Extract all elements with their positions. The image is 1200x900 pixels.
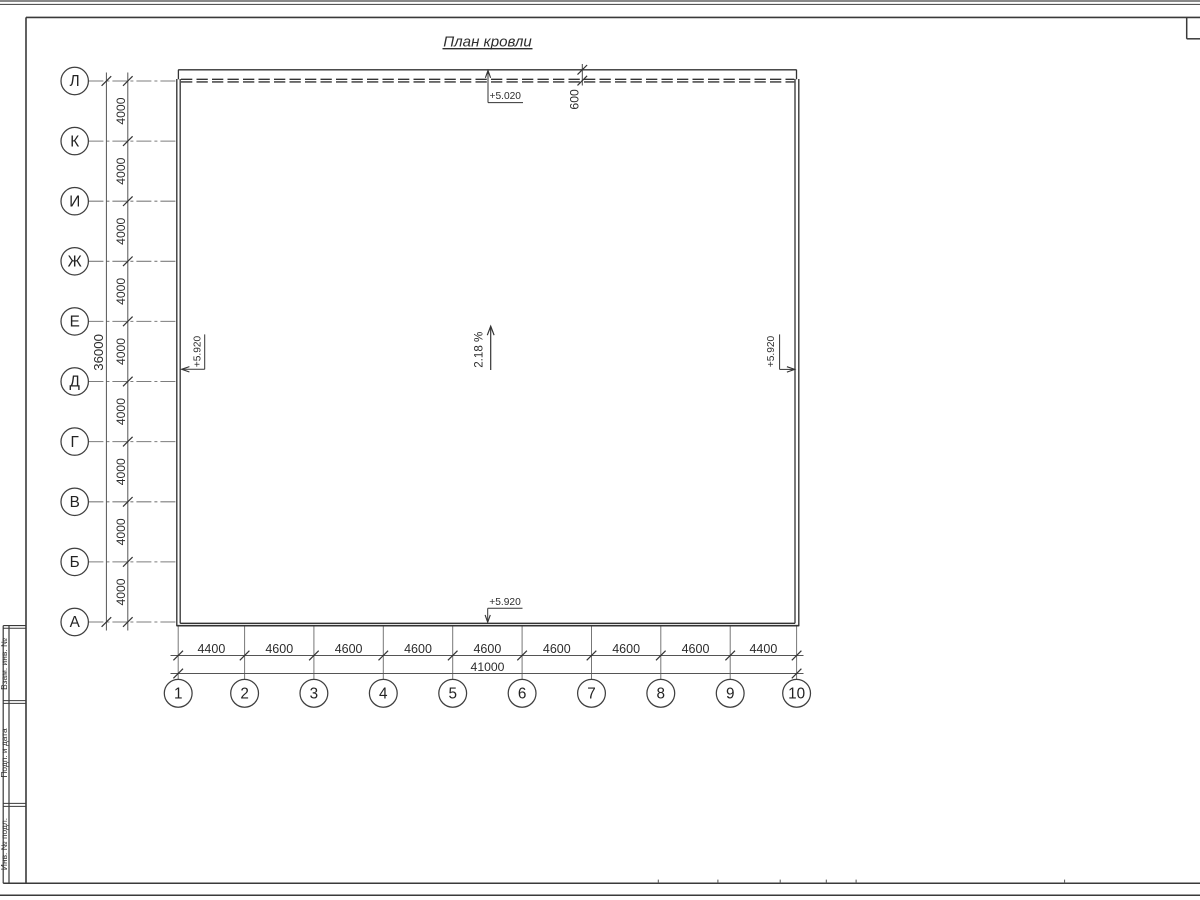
svg-text:К: К [70, 133, 79, 150]
svg-text:4000: 4000 [114, 458, 128, 485]
svg-text:2.18 %: 2.18 % [472, 332, 485, 368]
svg-text:1: 1 [174, 686, 183, 703]
svg-text:600: 600 [568, 89, 582, 110]
svg-text:+5.020: +5.020 [490, 91, 522, 102]
svg-text:4600: 4600 [265, 642, 293, 656]
svg-text:4600: 4600 [612, 642, 640, 656]
svg-text:36000: 36000 [91, 334, 106, 371]
svg-text:3: 3 [310, 686, 319, 703]
svg-text:4600: 4600 [404, 642, 432, 656]
svg-text:8: 8 [657, 686, 666, 703]
svg-text:Л: Л [70, 73, 80, 90]
svg-text:Г: Г [71, 434, 79, 451]
svg-text:10: 10 [788, 686, 805, 703]
svg-text:И: И [69, 193, 80, 210]
svg-text:7: 7 [587, 686, 596, 703]
svg-text:4000: 4000 [114, 278, 128, 305]
svg-text:9: 9 [726, 686, 735, 703]
svg-text:4000: 4000 [114, 157, 128, 184]
svg-text:4400: 4400 [749, 642, 777, 656]
svg-text:5: 5 [448, 686, 457, 703]
svg-text:+5.920: +5.920 [489, 597, 521, 608]
svg-text:Подп. и дата: Подп. и дата [0, 728, 9, 778]
svg-text:В: В [70, 494, 80, 511]
svg-text:Ж: Ж [68, 254, 82, 271]
svg-text:Е: Е [70, 314, 80, 331]
svg-text:6: 6 [518, 686, 527, 703]
svg-text:Взам. инв. №: Взам. инв. № [0, 638, 9, 690]
svg-text:Б: Б [70, 554, 80, 571]
svg-text:4000: 4000 [114, 578, 128, 605]
svg-text:2: 2 [240, 686, 249, 703]
svg-text:4600: 4600 [335, 642, 363, 656]
svg-text:+5.920: +5.920 [193, 335, 204, 367]
svg-text:Инв. № подл.: Инв. № подл. [0, 818, 9, 870]
svg-text:+5.920: +5.920 [766, 335, 777, 367]
svg-text:4: 4 [379, 686, 388, 703]
svg-text:4000: 4000 [114, 518, 128, 545]
svg-text:А: А [70, 614, 81, 631]
svg-text:4000: 4000 [114, 217, 128, 244]
svg-text:Д: Д [70, 374, 81, 391]
svg-text:4000: 4000 [114, 97, 128, 124]
svg-text:4000: 4000 [114, 398, 128, 425]
svg-text:4600: 4600 [473, 642, 501, 656]
svg-text:4400: 4400 [197, 642, 225, 656]
svg-text:4600: 4600 [543, 642, 571, 656]
svg-text:4600: 4600 [682, 642, 710, 656]
svg-text:41000: 41000 [471, 660, 505, 674]
svg-text:План кровли: План кровли [443, 34, 532, 51]
svg-text:4000: 4000 [114, 338, 128, 365]
